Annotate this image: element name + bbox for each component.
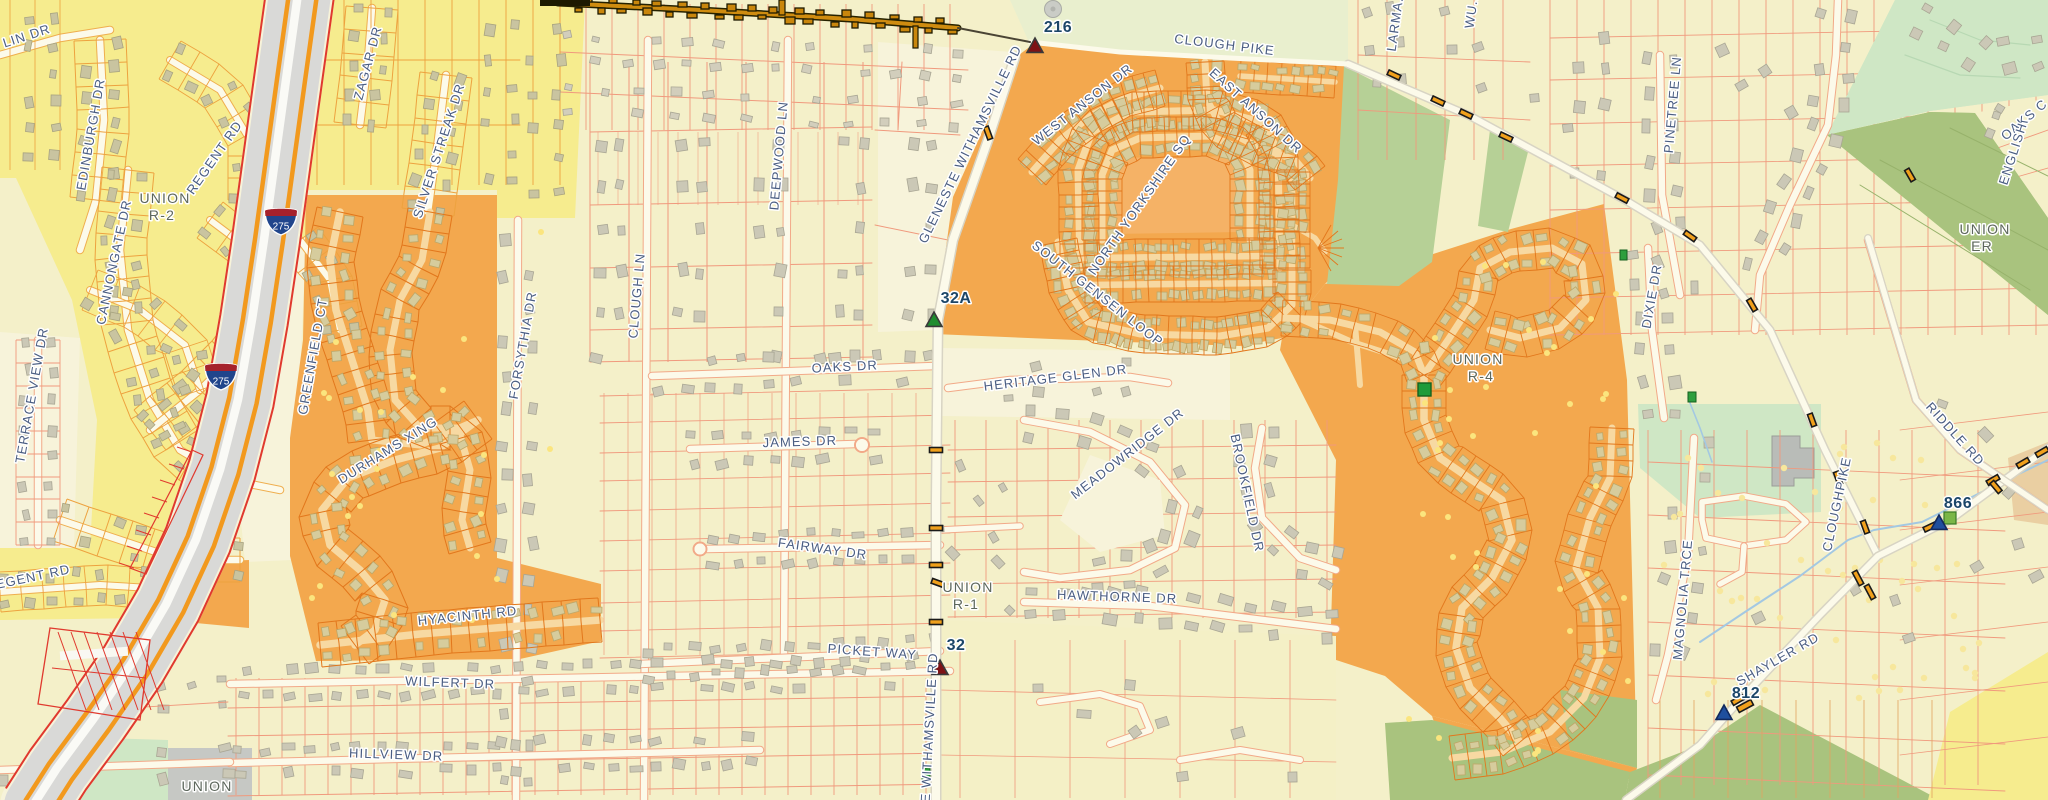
svg-text:R-2: R-2 (149, 207, 175, 223)
svg-text:UNION: UNION (1452, 351, 1503, 367)
svg-text:UNION: UNION (942, 579, 993, 595)
svg-text:R-4: R-4 (1468, 368, 1494, 384)
svg-text:R-1: R-1 (953, 596, 979, 612)
svg-text:216: 216 (1044, 19, 1072, 36)
svg-text:ER: ER (1971, 238, 1993, 254)
svg-text:275: 275 (273, 222, 290, 233)
svg-text:UNION: UNION (1959, 221, 2010, 237)
svg-text:32A: 32A (941, 290, 972, 307)
svg-text:812: 812 (1732, 685, 1760, 702)
svg-text:866: 866 (1944, 495, 1972, 512)
svg-text:32: 32 (947, 637, 966, 654)
svg-text:275: 275 (213, 377, 230, 388)
svg-text:JAMES DR: JAMES DR (762, 433, 837, 451)
svg-text:UNION: UNION (181, 778, 232, 794)
svg-text:WILFERT DR: WILFERT DR (405, 673, 495, 691)
svg-text:UNION: UNION (139, 190, 190, 206)
